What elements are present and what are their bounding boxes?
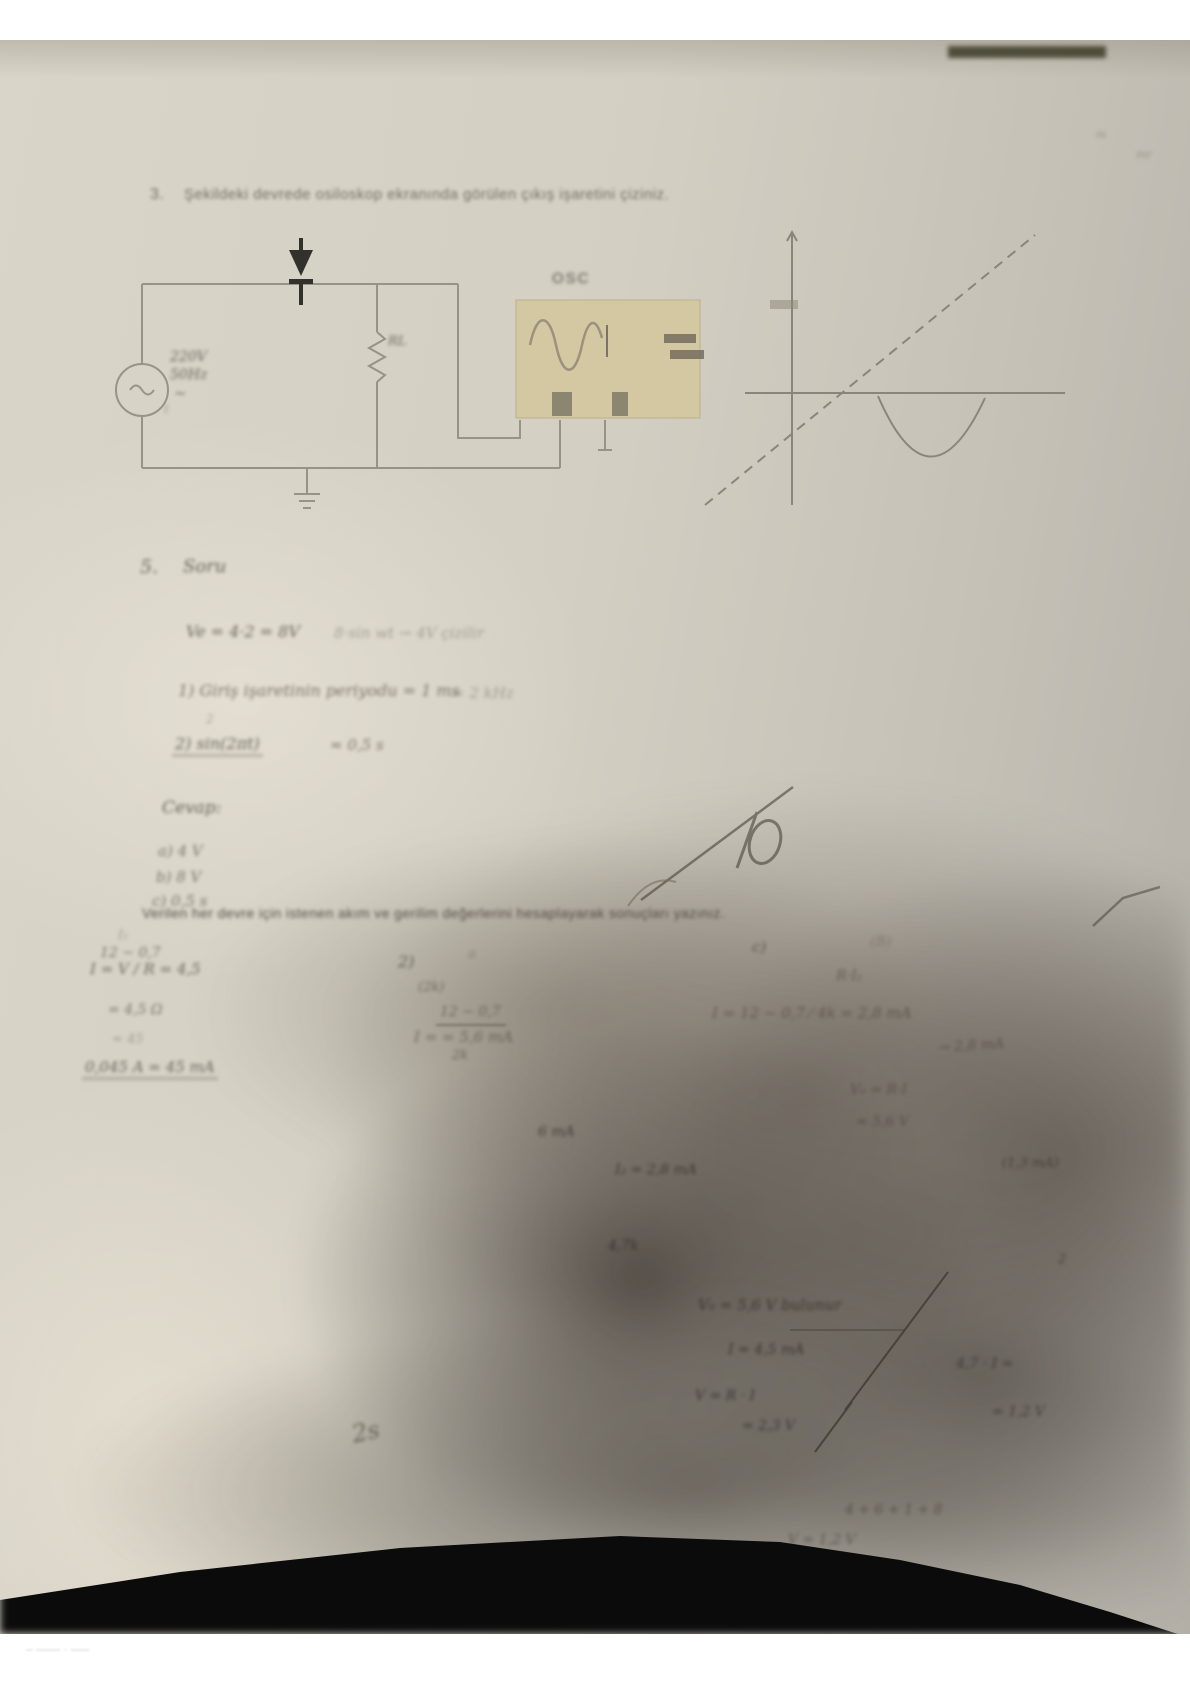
answer-b: b) 8 V [156, 868, 201, 886]
source-tilde: ~ [174, 384, 187, 402]
shadow-note: 4,7k [608, 1238, 639, 1254]
source-small-mark: t [164, 402, 169, 416]
source-label-frequency: 50Hz [170, 367, 207, 383]
right-note: 4,7 · I = [956, 1356, 1013, 1372]
section5-line3-sup: 2 [206, 712, 214, 726]
work-right-line: I = 12 − 0,7 ⁄ 4k = 2,8 mA [712, 1004, 912, 1022]
work-mid-line: 12 − 0,7 [440, 1004, 501, 1020]
section5-number: 5. [140, 556, 158, 578]
right-note: 4 + 6 + 1 + 8 [845, 1502, 943, 1518]
diode [289, 238, 313, 305]
line-art [0, 40, 1190, 1634]
answers-title: Cevap: [162, 798, 221, 818]
shadow-note: V₀ = 5,6 V bulunur [698, 1296, 841, 1314]
question-bottom-text: Verilen her devre için istenen akım ve g… [142, 905, 725, 921]
section5-line2: 1) Giriş işaretinin periyodu = 1 ms [178, 681, 460, 700]
work-left-line: I₁ [118, 928, 128, 943]
check-mark [1093, 887, 1160, 926]
load-resistor [369, 284, 385, 468]
question3-number: 3. [150, 186, 164, 204]
graph-negative-halfwave [878, 396, 985, 457]
shadow-note: I₂ = 2,8 mA [615, 1162, 697, 1178]
work-left-line: I = V / R = 4,5 [90, 960, 201, 978]
work-mid-line: a [468, 946, 476, 962]
wire-to-scope [458, 284, 520, 438]
work-left-line: 12 − 0,7 [100, 945, 161, 961]
work-right-line: (B) [870, 934, 891, 950]
scope-terminal [552, 392, 572, 416]
fraction-bar [436, 1024, 506, 1026]
grade-mark [628, 787, 793, 906]
section5-line2-cont: = 2 kHz [452, 684, 514, 702]
corner-smudge: m [1096, 128, 1106, 141]
work-right-line: R·I₂ [836, 968, 862, 984]
ac-sine-symbol [130, 386, 154, 395]
probe-leads [560, 420, 612, 468]
scope-label: OSC [552, 270, 591, 287]
graph-dashed-diagonal [705, 235, 1035, 505]
work-mid-line: (2k) [418, 980, 444, 995]
resistor-label: RL [388, 334, 406, 349]
corner-smudge: mr [1136, 148, 1152, 161]
section5-line1-cont: 8·sin wt → 4V çizilir [334, 624, 484, 642]
section5-line3-result: ≈ 0,5 s [330, 736, 384, 754]
scope-knob [664, 334, 696, 343]
shadow-note: I = 4,5 mA [728, 1342, 804, 1358]
shadow-note: 6 mA [538, 1124, 575, 1140]
section5-line1: Ve = 4·2 = 8V [186, 622, 300, 641]
work-right-line: = 5,6 V [856, 1114, 909, 1130]
scope-terminal [612, 392, 628, 416]
right-note: (1,3 mA) [1002, 1156, 1059, 1171]
work-left-line: ≈ 45 [112, 1032, 144, 1047]
section5-line3: 2) sin(2πt) [172, 734, 263, 757]
source-label-voltage: 220V [170, 349, 207, 365]
work-right-line: V₀ = R·I [850, 1082, 907, 1098]
scope-smudge [770, 300, 798, 309]
work-mid-line: 2k [452, 1048, 468, 1063]
bottom-strip-smudge: – —— · —– [26, 1642, 89, 1656]
scope-knob [670, 350, 704, 359]
question3-text: Şekildeki devrede osiloskop ekranında gö… [184, 186, 669, 203]
work-left-line: = 4,5 Ω [108, 1002, 163, 1018]
right-note: = 1,2 V [992, 1404, 1045, 1420]
curl-mark: 2s [349, 1415, 382, 1448]
shadow-note: V = R · I [695, 1388, 755, 1404]
work-left-result: 0,045 A = 45 mA [82, 1058, 218, 1080]
work-mid-line: 2) [398, 952, 414, 971]
work-mid-line: I = = 5,6 mA [414, 1028, 513, 1046]
answer-a: a) 4 V [158, 842, 203, 860]
ground-symbol [294, 468, 320, 508]
oscilloscope [516, 300, 798, 418]
photographed-homework-page: { "photo": { "paper_color": "#d3cfc3", "… [0, 0, 1190, 1684]
right-note: V = 1,2 V [788, 1532, 856, 1548]
shadow-note: = 2,3 V [742, 1418, 795, 1434]
right-note: 2 [1058, 1252, 1066, 1267]
work-right-line: c) [752, 938, 766, 956]
transfer-graph [705, 232, 1065, 505]
section5-title: Soru [183, 556, 226, 577]
